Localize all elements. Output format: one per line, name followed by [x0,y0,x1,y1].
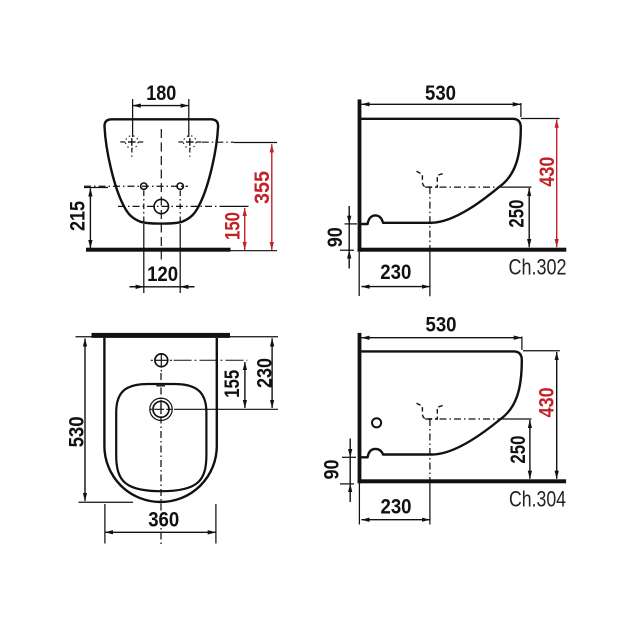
svg-text:230: 230 [252,358,276,388]
svg-text:120: 120 [147,262,178,286]
svg-text:Ch.302: Ch.302 [509,254,567,279]
svg-text:430: 430 [535,157,559,187]
svg-text:530: 530 [426,313,457,337]
svg-text:360: 360 [148,507,179,531]
svg-text:180: 180 [146,81,176,105]
svg-text:250: 250 [506,436,530,464]
svg-text:430: 430 [534,387,558,417]
svg-text:90: 90 [323,227,347,247]
svg-text:530: 530 [425,81,456,105]
svg-text:150: 150 [220,212,244,240]
svg-text:230: 230 [381,494,412,518]
svg-text:250: 250 [504,200,528,228]
svg-text:215: 215 [65,201,89,231]
svg-text:230: 230 [380,260,411,284]
svg-text:90: 90 [319,459,343,479]
svg-text:155: 155 [220,370,244,398]
svg-text:355: 355 [250,171,274,204]
svg-text:Ch.304: Ch.304 [509,486,566,511]
svg-text:530: 530 [64,416,88,447]
